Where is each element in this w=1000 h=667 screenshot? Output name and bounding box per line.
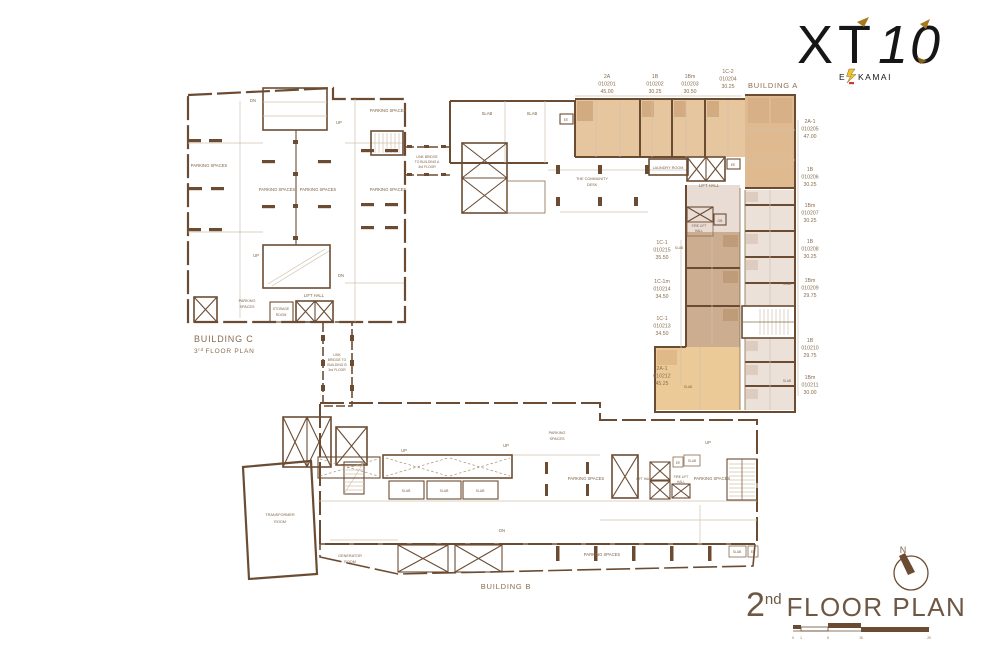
community-desk-label: THE COMMUNITY — [576, 177, 609, 181]
north-label: N — [900, 545, 907, 555]
building-a: SLAB SLAB EE EE THE COMMUNITY DESK LAUND… — [450, 81, 798, 412]
parking-label: PARKING SPACES — [584, 552, 621, 557]
generator-room-label: ROOM — [344, 560, 356, 564]
unit-number: 010214 — [653, 287, 670, 293]
laundry-room-label: LAUNDRY ROOM — [653, 166, 684, 170]
slab-label: SLAB — [402, 489, 411, 493]
link-bridge-to-b: LINK BRIDGE TO BUILDING B 3rd FLOOR — [321, 322, 354, 406]
unit-number: 010211 — [802, 383, 819, 389]
slab-label: SLAB — [440, 489, 449, 493]
page-title: 2ndFLOOR PLAN — [746, 586, 966, 624]
unit-type: 1Bm — [805, 375, 816, 381]
fire-lift-hall-label: HALL — [677, 480, 685, 484]
unit-number: 010204 — [719, 77, 736, 83]
unit-number: 010202 — [646, 82, 663, 88]
generator-room-label: GENERATOR — [338, 554, 362, 558]
unit-number: 010210 — [801, 346, 818, 352]
unit-number: 010203 — [681, 82, 698, 88]
parking-label: PARKING SPACES — [370, 187, 407, 192]
unit-type: 1Bm — [805, 278, 816, 284]
unit-area: 34.50 — [656, 294, 669, 300]
unit-number: 010207 — [801, 211, 818, 217]
lift-hall-label: LIFT HALL — [304, 293, 325, 298]
ramp-upper — [263, 88, 327, 130]
lift-hall-label: LIFT HALL — [636, 477, 652, 481]
lift-hall-label: LIFT HALL — [699, 183, 720, 188]
unit-type: 1B — [807, 167, 814, 173]
unit-number: 010209 — [801, 286, 818, 292]
unit-type: 1B — [652, 74, 659, 80]
ramp-b-center — [383, 455, 512, 478]
dn-label: DN — [338, 273, 344, 278]
logo-location-rest: KAMAI — [858, 72, 892, 82]
lift-core-a-east — [687, 157, 725, 181]
stair-east-wing — [742, 306, 795, 338]
slab-label: SLAB — [733, 550, 741, 554]
unit-type: 2A-1 — [805, 119, 816, 125]
building-a-title: BUILDING A — [748, 81, 798, 90]
floor-plan-canvas: PARKING SPACES PARKING SPACES PARKING SP… — [0, 0, 1000, 667]
unit-type: 1C-2 — [722, 69, 733, 75]
scale-tick-label: 0 — [792, 636, 794, 640]
floor-superscript: rd — [198, 347, 204, 352]
unit-labels-right: 2A-1 010205 47.00 1B 010206 30.25 1Bm 01… — [801, 119, 818, 396]
up-label: UP — [253, 253, 259, 258]
ramp-lower — [263, 245, 330, 288]
plan-title-block: 2ndFLOOR PLAN 0 1 5 10 20 — [746, 586, 966, 640]
parking-label: PARKING SPACES — [191, 163, 228, 168]
red-accent-icon — [849, 82, 854, 84]
bridge-a-label: 3rd FLOOR — [418, 165, 436, 169]
slab-label: SLAB — [684, 385, 692, 389]
unit-type: 1C-1 — [656, 240, 667, 246]
title-floor-superscript: nd — [765, 591, 782, 608]
unit-area: 30.25 — [722, 84, 735, 90]
unit-type: 1Bm — [805, 203, 816, 209]
unit-labels-top: 2A 010201 45.00 1B 010202 30.25 1Bm 0102… — [598, 69, 736, 95]
unit-type: 1B — [807, 239, 814, 245]
logo-location-e: E — [839, 72, 846, 82]
bridge-a-label: TO BUILDING A — [415, 160, 440, 164]
parking-label: SPACES — [549, 437, 565, 441]
lift-core-a-west — [462, 143, 545, 213]
core-x-boxes-south — [398, 545, 502, 572]
scale-tick-label: 5 — [827, 636, 829, 640]
unit-number: 010208 — [801, 247, 818, 253]
link-bridge-to-a: LINK BRIDGE TO BUILDING A 3rd FLOOR — [405, 145, 452, 176]
unit-area: 34.50 — [656, 331, 669, 337]
building-c-subtitle: 3rdFLOOR PLAN — [194, 347, 255, 355]
floor-text: FLOOR PLAN — [205, 348, 254, 355]
slab-label: SLAB — [482, 111, 493, 116]
logo-number: 10 — [878, 15, 942, 75]
slab-label: SLAB — [688, 459, 696, 463]
unit-area: 29.75 — [804, 293, 817, 299]
slab-label: SLAB — [527, 111, 538, 116]
unit-area: 30.25 — [649, 89, 662, 95]
title-floor-text: FLOOR PLAN — [787, 592, 967, 622]
slab-label: SLAB — [783, 379, 791, 383]
unit-type: 1B — [807, 338, 814, 344]
bridge-b-label: LINK — [333, 353, 341, 357]
up-label: UP — [336, 120, 342, 125]
unit-number: 010215 — [653, 248, 670, 254]
stair-east — [727, 459, 757, 500]
slab-label: SLAB — [675, 246, 683, 250]
scale-bar: 0 1 5 10 20 — [792, 623, 931, 640]
bridge-b-label: BUILDING B — [327, 363, 347, 367]
fire-lift-hall-label: FIRE LIFT — [674, 475, 689, 479]
unit-area: 30.25 — [804, 182, 817, 188]
fire-lift-hall-label: HALL — [695, 229, 703, 233]
bridge-b-label: BRIDGE TO — [328, 358, 347, 362]
scale-tick-label: 20 — [927, 636, 931, 640]
unit-type: 2A — [604, 74, 611, 80]
transformer-room-label: ROOM — [274, 520, 286, 524]
ee-label: EE — [676, 461, 680, 465]
parking-label: PARKING SPACES — [370, 108, 407, 113]
parking-label: PARKING — [239, 299, 256, 303]
building-b-title: BUILDING B — [481, 582, 532, 591]
fire-lift-hall-label: FIRE LIFT — [692, 224, 707, 228]
slab-label: SLAB — [783, 282, 791, 286]
unit-type: 2A-1 — [657, 366, 668, 372]
building-c: PARKING SPACES PARKING SPACES PARKING SP… — [188, 88, 406, 355]
unit-number: 010212 — [653, 374, 670, 380]
unit-area: 45.25 — [656, 381, 669, 387]
unit-type: 1C-1m — [654, 279, 670, 285]
parking-ticks-c — [188, 139, 398, 231]
unit-area: 45.00 — [601, 89, 614, 95]
unit-area: 30.50 — [684, 89, 697, 95]
parking-label: PARKING SPACES — [694, 476, 731, 481]
parking-label: SPACES — [239, 305, 255, 309]
gb-label: GB — [718, 219, 724, 223]
unit-area: 47.00 — [804, 134, 817, 140]
dn-label: DN — [499, 528, 505, 533]
fire-lift-b — [672, 484, 690, 498]
storage-room-label: ROOM — [276, 313, 287, 317]
north-indicator: N — [894, 545, 928, 590]
unit-area: 30.00 — [804, 390, 817, 396]
storage-room-label: STORAGE — [273, 307, 290, 311]
community-desk-label: DESK — [587, 183, 598, 187]
unit-number: 010206 — [801, 175, 818, 181]
scale-tick-label: 1 — [800, 636, 802, 640]
parking-label: PARKING SPACES — [300, 187, 337, 192]
scale-tick-label: 10 — [859, 636, 863, 640]
ee-label: EE — [751, 550, 755, 554]
storage-room — [270, 302, 293, 322]
up-label: UP — [705, 440, 711, 445]
unit-number: 010213 — [653, 324, 670, 330]
up-label: UP — [401, 448, 407, 453]
unit-area: 29.75 — [804, 353, 817, 359]
floor-plan-page: PARKING SPACES PARKING SPACES PARKING SP… — [0, 0, 1000, 667]
unit-number: 010205 — [801, 127, 818, 133]
unit-type: 1Bm — [685, 74, 696, 80]
bridge-a-label: LINK BRIDGE — [416, 155, 438, 159]
building-c-title: BUILDING C — [194, 334, 254, 344]
title-floor-number: 2 — [746, 586, 765, 624]
slab-label: SLAB — [476, 489, 485, 493]
transformer-room-label: TRANSFORMER — [265, 513, 295, 517]
logo-xt-ekkamai: XT 10 E KAMAI — [797, 15, 942, 84]
unit-area: 30.25 — [804, 254, 817, 260]
unit-area: 30.25 — [804, 218, 817, 224]
unit-number: 010201 — [598, 82, 615, 88]
ee-label: EE — [564, 118, 569, 122]
unit-area: 35.50 — [656, 255, 669, 261]
parking-label: PARKING SPACES — [259, 187, 296, 192]
lift-core-c — [296, 301, 333, 322]
dn-label: DN — [250, 98, 256, 103]
building-b: TRANSFORMER ROOM GENERATOR ROOM UP UP UP… — [243, 403, 758, 591]
parking-label: PARKING SPACES — [568, 476, 605, 481]
ee-label: EE — [731, 163, 736, 167]
core-x-boxes-west — [283, 417, 367, 467]
up-label: UP — [503, 443, 509, 448]
parking-label: PARKING — [549, 431, 566, 435]
unit-type: 1C-1 — [656, 316, 667, 322]
bridge-b-label: 3rd FLOOR — [328, 368, 346, 372]
stair-bottom-left — [194, 297, 217, 322]
